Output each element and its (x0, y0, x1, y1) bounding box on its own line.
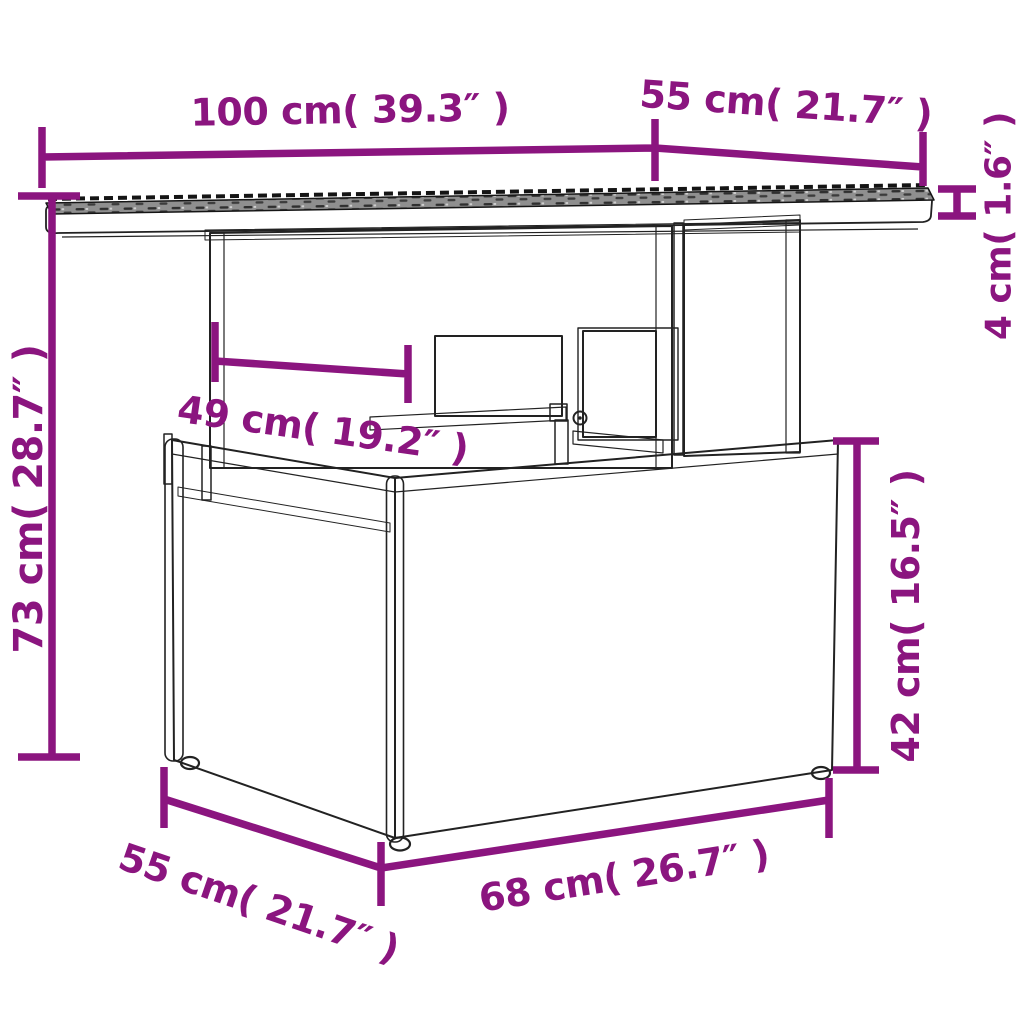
dim-total-height-label: 73 cm( 28.7″ ) (6, 345, 52, 654)
dim-table-top-depth: 55 cm( 21.7″ ) (638, 72, 934, 186)
dim-support-opening-width-label: 49 cm( 19.2″ ) (175, 387, 471, 471)
lift-post (555, 420, 568, 464)
dim-table-top-length-label: 100 cm( 39.3″ ) (190, 85, 510, 135)
support-right-pillar (684, 220, 800, 456)
dim-table-top-depth-label: 55 cm( 21.7″ ) (638, 72, 934, 136)
dim-table-top-thickness: 4 cm( 1.6″ ) (938, 112, 1020, 340)
dim-base-depth: 55 cm( 21.7″ ) (113, 767, 405, 972)
product-dimension-diagram: 100 cm( 39.3″ ) 55 cm( 21.7″ ) 4 cm( 1.6… (0, 0, 1024, 1024)
dim-support-opening-width-line (215, 322, 408, 403)
dim-table-top-thickness-label: 4 cm( 1.6″ ) (979, 112, 1020, 340)
dim-base-height: 42 cm( 16.5″ ) (833, 441, 928, 770)
diagram-canvas: 100 cm( 39.3″ ) 55 cm( 21.7″ ) 4 cm( 1.6… (0, 0, 1024, 1024)
dim-table-top-length: 100 cm( 39.3″ ) (42, 85, 655, 188)
dim-base-height-label: 42 cm( 16.5″ ) (884, 469, 928, 762)
lift-rail-right (573, 431, 663, 453)
base-foot-front (390, 838, 410, 851)
support-panel-right-roll-edge (656, 226, 672, 468)
table-base-box (165, 439, 838, 851)
dim-base-height-line (833, 441, 879, 770)
table-illustration (46, 185, 934, 851)
support-back-wall (578, 328, 678, 440)
support-right-pillar-roll-edge (786, 220, 800, 453)
base-right-face (395, 440, 838, 838)
table-support-assembly (164, 215, 800, 500)
dim-base-depth-label: 55 cm( 21.7″ ) (113, 834, 405, 971)
lift-pivot-center (578, 416, 582, 420)
base-lid-seam (178, 487, 390, 532)
dim-total-height: 73 cm( 28.7″ ) (6, 196, 80, 757)
dim-table-top-thickness-bracket (938, 189, 976, 216)
dim-table-top-depth-line (655, 132, 923, 186)
dim-base-length: 68 cm( 26.7″ ) (381, 778, 829, 921)
